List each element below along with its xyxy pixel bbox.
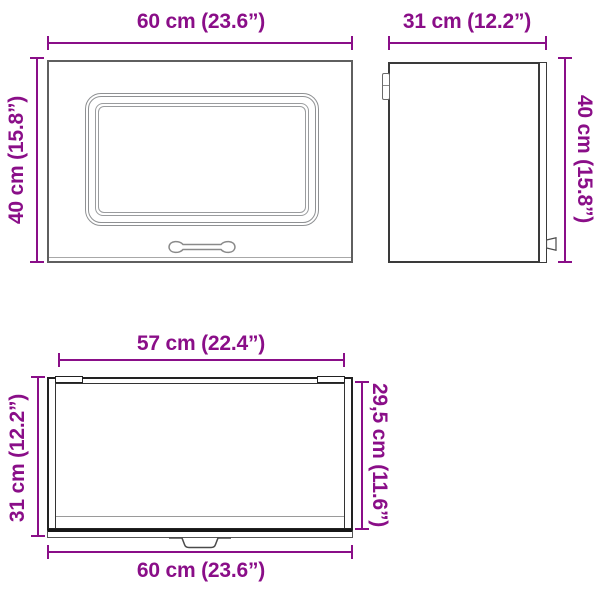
dim-tick (31, 535, 45, 537)
hinge-icon (382, 73, 390, 100)
top-inner-depth-label: 29,5 cm (11.6”) (366, 383, 392, 527)
front-inner-line (56, 516, 344, 517)
dim-tick (31, 376, 45, 378)
door-handle-icon (166, 239, 238, 255)
dim-line-side-width (388, 42, 547, 44)
dim-tick (545, 36, 547, 50)
side-width-label: 31 cm (12.2”) (403, 9, 531, 35)
side-height-label: 40 cm (15.8”) (571, 95, 597, 223)
dimension-diagram: 60 cm (23.6”) 40 cm (15.8”) 31 cm (12.2”… (0, 0, 600, 600)
glass-door-frame-inner (95, 103, 309, 216)
dim-tick (388, 36, 390, 50)
dim-line-top-outer-width (47, 551, 353, 553)
dim-tick (30, 57, 44, 59)
top-handle-icon (168, 537, 232, 550)
back-wall-line (55, 383, 345, 384)
hinge-icon (317, 376, 345, 383)
front-view-cabinet (47, 60, 353, 263)
dim-tick (47, 36, 49, 50)
dim-line-top-depth (37, 376, 39, 537)
top-outer-width-label: 60 cm (23.6”) (137, 558, 265, 584)
glass-door-frame-mid (88, 96, 316, 223)
dim-tick (558, 57, 572, 59)
glass-door-frame-outer (85, 93, 319, 226)
dim-tick (351, 545, 353, 559)
side-view-door-panel (539, 62, 547, 263)
top-depth-label: 31 cm (12.2”) (5, 394, 31, 522)
front-width-label: 60 cm (23.6”) (137, 9, 265, 35)
dim-tick (351, 36, 353, 50)
dim-line-front-width (47, 42, 353, 44)
dim-tick (47, 545, 49, 559)
side-handle-icon (546, 237, 558, 251)
side-view-cabinet (388, 62, 540, 263)
dim-tick (355, 528, 369, 530)
door-bottom-gap-line (49, 257, 351, 258)
top-inner-width-label: 57 cm (22.4”) (137, 331, 265, 357)
hinge-icon (55, 376, 83, 383)
dim-line-top-inner-width (58, 359, 345, 361)
dim-tick (558, 261, 572, 263)
dim-tick (30, 261, 44, 263)
dim-line-side-height (564, 57, 566, 263)
dim-tick (58, 353, 60, 367)
glass-panel (98, 106, 306, 213)
front-height-label: 40 cm (15.8”) (4, 96, 30, 224)
top-view-cabinet (47, 377, 353, 530)
dim-line-front-height (36, 57, 38, 263)
right-wall-line (344, 379, 345, 528)
dim-tick (343, 353, 345, 367)
dim-line-top-inner-depth (361, 381, 363, 530)
left-wall-line (55, 379, 56, 528)
